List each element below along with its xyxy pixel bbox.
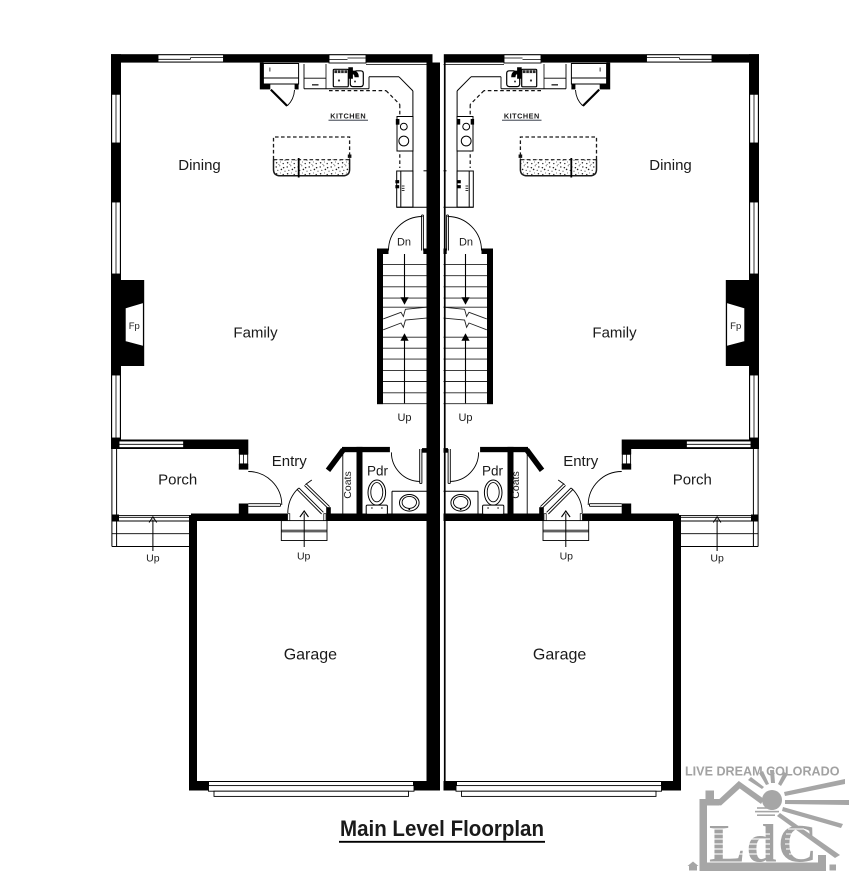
svg-text:Porch: Porch [158, 472, 197, 489]
svg-text:Up: Up [397, 412, 411, 424]
svg-text:Dn: Dn [397, 237, 411, 249]
svg-text:Fp: Fp [730, 321, 741, 332]
svg-text:Family: Family [233, 325, 278, 342]
svg-text:Dining: Dining [649, 157, 692, 174]
svg-text:Porch: Porch [673, 472, 712, 489]
svg-text:Up: Up [146, 553, 160, 565]
svg-text:Dining: Dining [178, 157, 221, 174]
svg-text:Garage: Garage [284, 647, 337, 664]
svg-text:Pdr: Pdr [482, 464, 504, 479]
svg-text:Coats: Coats [510, 471, 522, 498]
svg-text:Pdr: Pdr [367, 464, 389, 479]
svg-text:Dn: Dn [459, 237, 473, 249]
svg-text:Family: Family [592, 325, 637, 342]
svg-text:Up: Up [458, 412, 472, 424]
svg-text:Up: Up [710, 553, 724, 565]
svg-text:KITCHEN: KITCHEN [504, 112, 540, 121]
svg-text:Entry: Entry [563, 453, 599, 470]
svg-text:Up: Up [560, 551, 574, 563]
svg-text:KITCHEN: KITCHEN [330, 112, 366, 121]
svg-text:Main Level Floorplan: Main Level Floorplan [340, 816, 544, 841]
svg-text:Up: Up [297, 551, 311, 563]
svg-text:Entry: Entry [272, 453, 308, 470]
svg-text:Fp: Fp [129, 321, 140, 332]
svg-text:Garage: Garage [533, 647, 586, 664]
svg-text:Coats: Coats [342, 471, 354, 498]
